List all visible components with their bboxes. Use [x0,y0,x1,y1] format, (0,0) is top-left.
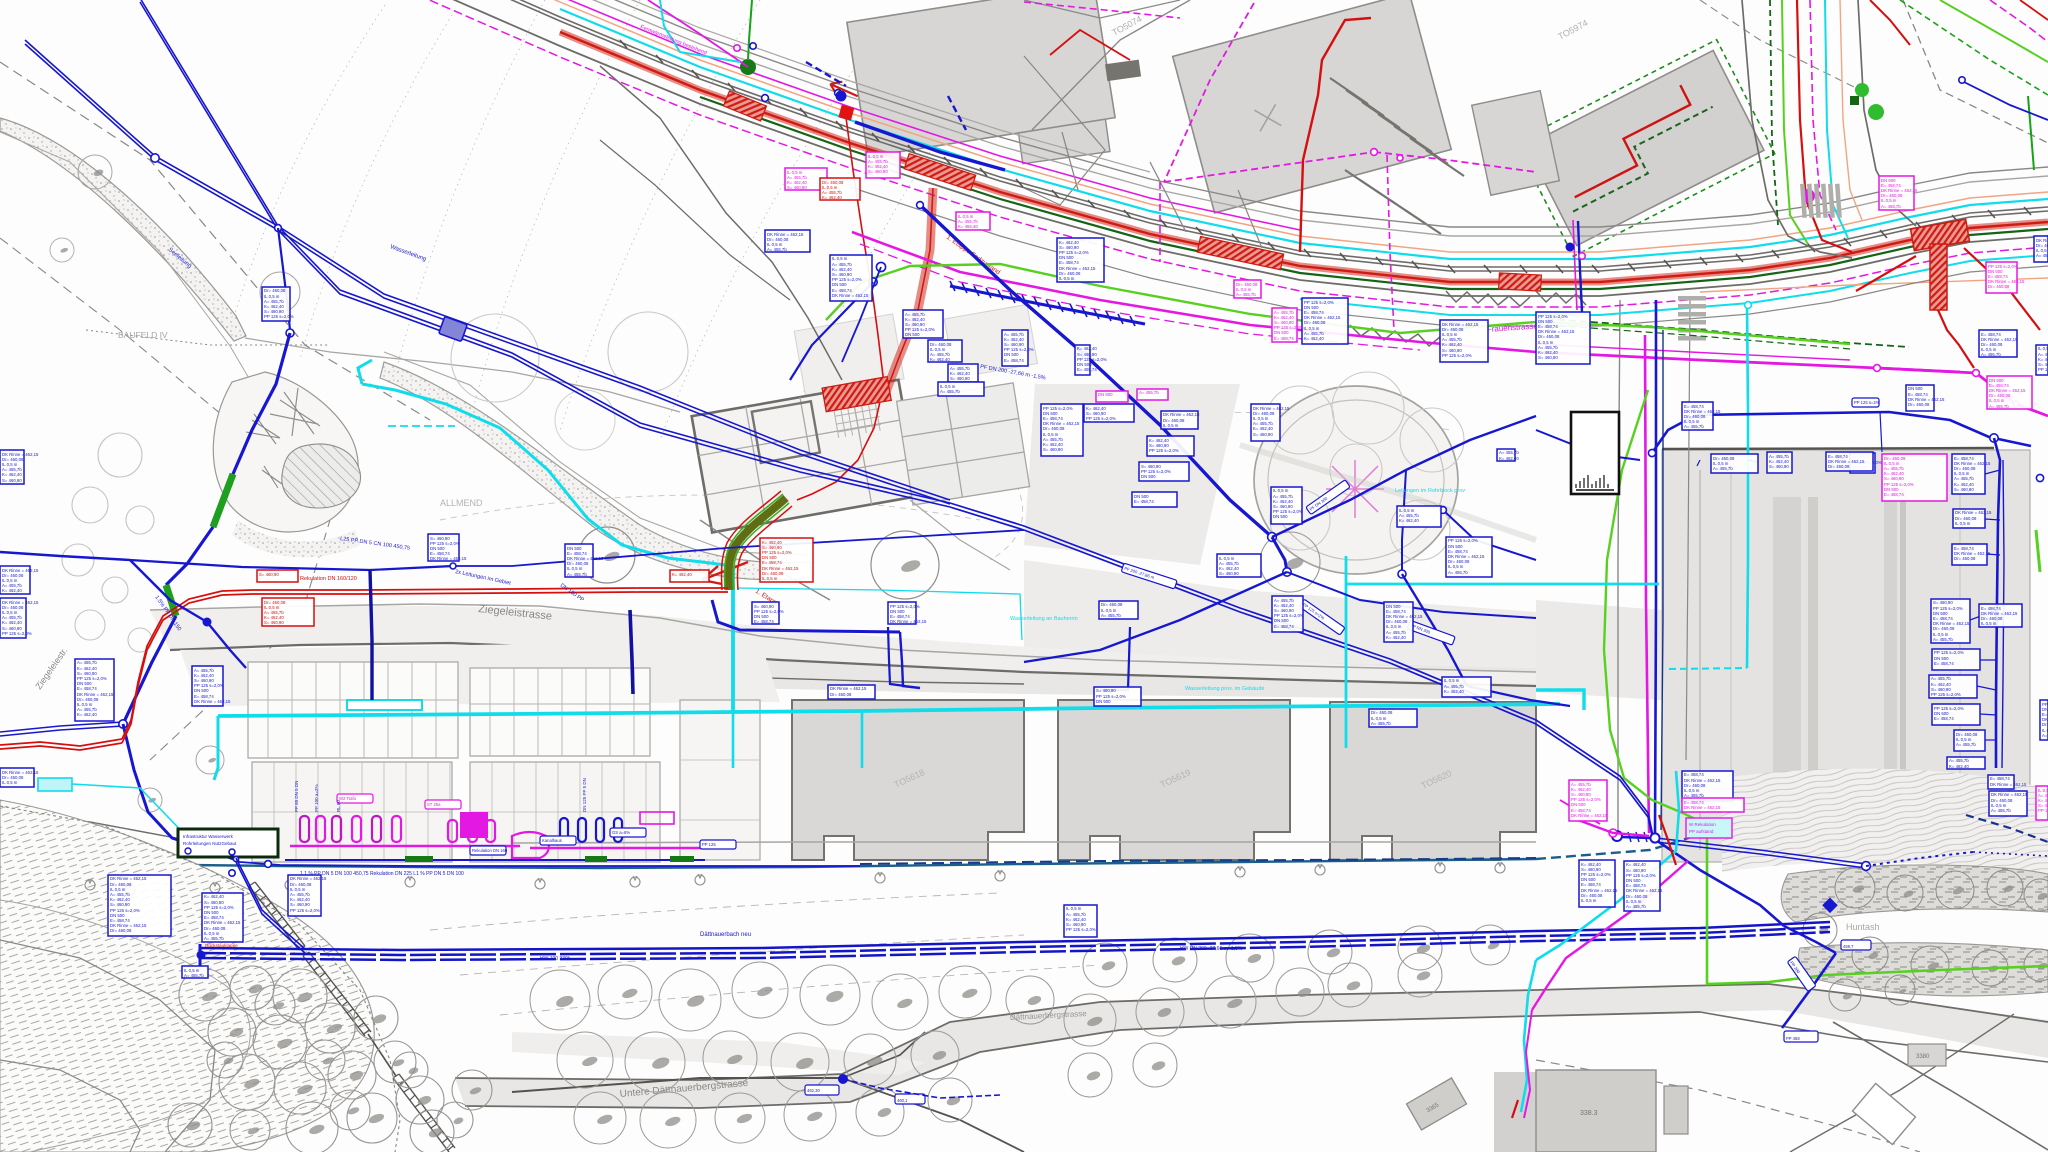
svg-text:E= 458,74: E= 458,74 [1990,776,2010,781]
svg-text:DN 500: DN 500 [1096,699,1111,704]
svg-text:A= 455,7b: A= 455,7b [940,389,960,394]
svg-text:E= 458,74: E= 458,74 [1274,336,1294,341]
svg-text:PP 125 s=2%: PP 125 s=2% [1854,400,1880,405]
svg-text:DK Rinne = 462,15: DK Rinne = 462,15 [890,619,927,624]
svg-text:IL 0,5 m: IL 0,5 m [1955,521,1971,526]
svg-text:PP 80 DN 5 DN: PP 80 DN 5 DN [294,781,299,812]
svg-text:Dr= 460,08: Dr= 460,08 [1908,402,1930,407]
svg-text:E= 458,74: E= 458,74 [1004,358,1024,363]
svg-text:S= 460,90: S= 460,90 [1219,571,1239,576]
svg-text:A= 455,7b: A= 455,7b [1954,476,1974,481]
svg-text:IL 0,5 m: IL 0,5 m [2,780,18,785]
svg-text:DN 500: DN 500 [1908,386,1923,391]
svg-text:E= 458,74: E= 458,74 [1684,772,1704,777]
svg-text:IL 0,5 m: IL 0,5 m [567,566,583,571]
svg-text:Huntash: Huntash [1846,922,1880,932]
svg-text:Dr= 460,08: Dr= 460,08 [830,692,852,697]
svg-text:PP 125 s=2,0%: PP 125 s=2,0% [1934,650,1964,655]
svg-text:K= 462,40: K= 462,40 [204,894,224,899]
svg-text:E= 458,74: E= 458,74 [1274,624,1294,629]
svg-text:K= 462,40: K= 462,40 [1077,346,1097,351]
svg-text:K= 462,40: K= 462,40 [958,224,978,229]
svg-text:PP 125 s=2,0%: PP 125 s=2,0% [1149,448,1179,453]
svg-text:K= 462,40: K= 462,40 [2,588,22,593]
svg-text:Dr= 460,08: Dr= 460,08 [2042,722,2048,727]
svg-text:A= 455,7b: A= 455,7b [77,660,97,665]
svg-text:Dr= 460,08: Dr= 460,08 [1371,710,1393,715]
svg-text:DK Rinne = 462,15: DK Rinne = 462,15 [1991,792,2028,797]
svg-text:A= 455,7b: A= 455,7b [1139,390,1159,395]
svg-text:PP aufstand: PP aufstand [1689,829,1714,834]
svg-text:E= 458,74: E= 458,74 [1934,661,1954,666]
svg-text:DK Rinne = 462,15: DK Rinne = 462,15 [1684,805,1721,810]
svg-text:K= 462,40: K= 462,40 [1442,342,1462,347]
svg-text:K= 462,40: K= 462,40 [1386,635,1406,640]
svg-text:462,30: 462,30 [807,1088,820,1093]
svg-text:459,7: 459,7 [1843,944,1854,949]
svg-text:DK Rinne = 462,15: DK Rinne = 462,15 [194,699,231,704]
svg-text:W Rekulation: W Rekulation [1689,822,1716,827]
svg-text:PP 125 s=2,0%: PP 125 s=2,0% [1066,927,1096,932]
svg-text:E= 458,74: E= 458,74 [1884,492,1904,497]
svg-text:A= 455,7b: A= 455,7b [2042,733,2048,738]
svg-text:RL 60: RL 60 [336,800,341,812]
svg-text:ALLMEND: ALLMEND [440,498,483,508]
svg-text:Dr= 460,08: Dr= 460,08 [1933,626,1955,631]
svg-text:IL 0,5 m: IL 0,5 m [1448,564,1464,569]
svg-text:Wasserleitung prov. im Gebäude: Wasserleitung prov. im Gebäude [1185,686,1264,692]
svg-text:K= 462,40: K= 462,40 [672,572,692,577]
svg-text:DK Rinne = 462,15: DK Rinne = 462,15 [1571,813,1608,818]
svg-text:A= 455,7b: A= 455,7b [1933,637,1953,642]
svg-text:A= 455,7b: A= 455,7b [184,973,204,978]
svg-text:PP 125 s=2,0%: PP 125 s=2,0% [290,908,320,913]
svg-text:K= 462,40: K= 462,40 [1399,518,1419,523]
svg-text:A= 455,7b: A= 455,7b [1626,904,1646,909]
svg-text:E= 458,74: E= 458,74 [754,619,774,624]
svg-text:Dr= 460,08: Dr= 460,08 [1043,426,1065,431]
svg-text:K= 462,40: K= 462,40 [822,195,842,200]
svg-text:PP 125 s=2,0%: PP 125 s=2,0% [1442,353,1472,358]
svg-text:Leitungen im Rohrblock prov: Leitungen im Rohrblock prov [1395,488,1465,494]
svg-text:A= 455,7b: A= 455,7b [1991,808,2011,813]
svg-text:Rückstauklappe: Rückstauklappe [205,943,238,948]
svg-text:IL 0,5 m: IL 0,5 m [1163,423,1179,428]
svg-text:S= 460,90: S= 460,90 [950,376,970,381]
svg-text:DK Rinne = 462,15: DK Rinne = 462,15 [1626,888,1663,893]
svg-text:PP 125 s=2,0%: PP 125 s=2,0% [1086,416,1116,421]
svg-text:A= 455,7b: A= 455,7b [1101,613,1121,618]
svg-text:K= 462,40: K= 462,40 [2,620,22,625]
svg-text:HW RN 300 -27,66 m -1,5%: HW RN 300 -27,66 m -1,5% [1180,946,1243,952]
svg-text:GS a=6%: GS a=6% [612,830,630,835]
svg-text:DN 500: DN 500 [1004,352,1019,357]
svg-text:DK Rinne = 462,15: DK Rinne = 462,15 [290,876,327,881]
svg-text:E= 458,74: E= 458,74 [762,560,782,565]
svg-text:A= 455,7b: A= 455,7b [1989,404,2009,409]
svg-text:PP 125: PP 125 [702,842,716,847]
svg-text:S= 460,90: S= 460,90 [1538,355,1558,360]
svg-text:DK Rinne = 462,15: DK Rinne = 462,15 [430,556,467,561]
svg-text:IL 0,5 m: IL 0,5 m [1059,276,1075,281]
svg-text:A= 455,7b: A= 455,7b [1236,292,1256,297]
svg-text:Infrastruktur Wasserwerk: Infrastruktur Wasserwerk [183,834,234,839]
svg-text:IL 0,5 m: IL 0,5 m [2038,346,2048,351]
svg-text:Dr= 460,08: Dr= 460,08 [1101,602,1123,607]
svg-text:PP 125 s=2,0%: PP 125 s=2,0% [1931,692,1961,697]
svg-text:S= 460,90: S= 460,90 [787,185,807,190]
svg-text:K= 462,40: K= 462,40 [1626,862,1646,867]
svg-text:S= 460,90: S= 460,90 [264,620,284,625]
svg-text:A= 455,7b: A= 455,7b [1881,204,1901,209]
svg-text:DN 125 PP 5 DN: DN 125 PP 5 DN [582,778,587,812]
svg-text:DN 500: DN 500 [1274,618,1289,623]
svg-text:IL 0,5 m: IL 0,5 m [1881,198,1897,203]
svg-text:S= 460,90: S= 460,90 [110,902,130,907]
svg-text:E= 458,74: E= 458,74 [1581,882,1601,887]
svg-text:DN 500: DN 500 [1141,474,1156,479]
svg-text:S= 460,90: S= 460,90 [1043,447,1063,452]
svg-text:BAUFELD IV: BAUFELD IV [118,330,168,340]
svg-text:S= 460,90: S= 460,90 [1884,476,1904,481]
svg-text:Dr= 460,08: Dr= 460,08 [1538,334,1560,339]
svg-text:Rekulation DN 160: Rekulation DN 160 [472,848,508,853]
svg-text:A= 455,7b: A= 455,7b [567,572,587,577]
svg-text:K= 462,40: K= 462,40 [77,712,97,717]
svg-text:Dr= 460,08: Dr= 460,08 [264,288,286,293]
svg-text:DN 500: DN 500 [194,688,209,693]
svg-text:Dr= 460,08: Dr= 460,08 [1304,320,1326,325]
svg-text:PP 125 s=2,0%: PP 125 s=2,0% [1448,538,1478,543]
svg-text:Dr= 460,08: Dr= 460,08 [1828,464,1850,469]
svg-text:A= 455,7b: A= 455,7b [1448,570,1468,575]
svg-text:HW 100 330k: HW 100 330k [540,956,571,962]
svg-text:DK Rinne = 462,15: DK Rinne = 462,15 [1990,782,2027,787]
svg-text:E= 458,74: E= 458,74 [1134,499,1154,504]
svg-text:Wasserleitung an Bauherrin: Wasserleitung an Bauherrin [1010,616,1078,622]
svg-text:PP 100 a=3%: PP 100 a=3% [314,784,319,812]
svg-text:A= 455,7b: A= 455,7b [1981,352,2001,357]
svg-text:Dr= 460,08: Dr= 460,08 [110,928,132,933]
svg-text:S= 460,90: S= 460,90 [1096,688,1116,693]
svg-text:DK Rinne = 462,15: DK Rinne = 462,15 [830,686,867,691]
svg-text:DN 500: DN 500 [1571,802,1586,807]
svg-text:S= 460,90: S= 460,90 [1933,600,1953,605]
svg-text:Dättnauerbach neu: Dättnauerbach neu [700,932,751,938]
svg-text:DN 500: DN 500 [832,282,847,287]
svg-text:Rohrleitungen NutzGebaut: Rohrleitungen NutzGebaut [183,841,237,846]
svg-text:DK Rinne = 462,15: DK Rinne = 462,15 [832,293,869,298]
svg-text:A= 455,7b: A= 455,7b [1713,466,1733,471]
svg-text:S= 460,90: S= 460,90 [290,902,310,907]
svg-text:E= 458,74: E= 458,74 [77,686,97,691]
svg-text:DN 500: DN 500 [1273,514,1288,519]
svg-text:IL 0,5 m: IL 0,5 m [1989,398,2005,403]
svg-text:E= 458,74: E= 458,74 [1059,260,1079,265]
svg-text:ST 25a: ST 25a [427,802,441,807]
svg-text:K= 462,40: K= 462,40 [1949,764,1969,769]
svg-text:Dr= 460,08: Dr= 460,08 [1988,284,2010,289]
svg-text:A= 455,7b: A= 455,7b [767,247,787,252]
svg-text:A= 455,7b: A= 455,7b [1371,721,1391,726]
svg-text:DK Rinne = 462,15: DK Rinne = 462,15 [204,920,241,925]
svg-text:K= 462,40: K= 462,40 [1304,336,1324,341]
svg-text:Dr= 460,08: Dr= 460,08 [1954,556,1976,561]
svg-text:A= 455,7b: A= 455,7b [1949,758,1969,763]
svg-text:IL 0,5 m: IL 0,5 m [1581,898,1597,903]
svg-text:DN 500: DN 500 [1098,392,1113,397]
svg-text:S= 460,90: S= 460,90 [2,478,22,483]
svg-text:E= 458,74: E= 458,74 [1077,367,1097,372]
svg-text:S= 460,90: S= 460,90 [1954,487,1974,492]
svg-text:IL 0,5 m: IL 0,5 m [1981,621,1997,626]
svg-text:A= 455,7b: A= 455,7b [1956,742,1976,747]
svg-text:K= 462,40: K= 462,40 [1253,426,1273,431]
svg-text:W2 Trafo: W2 Trafo [339,796,357,801]
svg-text:IL 0,5 m: IL 0,5 m [1273,488,1289,493]
svg-text:PP 125 s=2,0%: PP 125 s=2,0% [2038,808,2048,813]
svg-text:IL 0,5 m: IL 0,5 m [1386,624,1402,629]
svg-text:K= 462,40: K= 462,40 [1444,689,1464,694]
svg-text:S= 460,90: S= 460,90 [1769,464,1789,469]
svg-text:E= 458,74: E= 458,74 [1934,716,1954,721]
svg-text:A= 455,7b: A= 455,7b [1931,676,1951,681]
svg-text:IL 0,5 m: IL 0,5 m [1444,678,1460,683]
svg-text:PP 458: PP 458 [1786,1036,1800,1041]
svg-text:Rekulation DN 160/120: Rekulation DN 160/120 [300,576,357,582]
svg-text:DN 500: DN 500 [905,332,920,337]
svg-text:PP 125 s=2,0%: PP 125 s=2,0% [2,631,32,636]
svg-text:S= 460,90: S= 460,90 [259,572,279,577]
svg-text:338.3: 338.3 [1580,1110,1598,1117]
svg-text:DK Rinne = 462,15: DK Rinne = 462,15 [1955,510,1992,515]
svg-text:3380: 3380 [1916,1054,1930,1060]
svg-text:A= 455,7b: A= 455,7b [1684,424,1704,429]
svg-text:IL 0,5 m: IL 0,5 m [1066,906,1082,911]
svg-text:IL 0,5 m: IL 0,5 m [762,576,778,581]
svg-text:IL 0,5 m: IL 0,5 m [832,256,848,261]
svg-text:S= 460,90: S= 460,90 [1253,432,1273,437]
svg-text:Kanalhaus: Kanalhaus [542,838,562,843]
svg-text:K= 462,40: K= 462,40 [930,357,950,362]
svg-text:PP 125 s=2,0%: PP 125 s=2,0% [264,314,294,319]
svg-text:A= 455,7b: A= 455,7b [204,936,224,941]
svg-text:460,1: 460,1 [897,1098,908,1103]
svg-text:K= 462,40: K= 462,40 [2,472,22,477]
svg-text:S= 460,90: S= 460,90 [868,169,888,174]
svg-text:K= 462,40: K= 462,40 [1499,456,1519,461]
svg-text:DN 500: DN 500 [1274,330,1289,335]
svg-text:A= 455,7b: A= 455,7b [1499,450,1519,455]
svg-text:DK Rinne = 462,15: DK Rinne = 462,15 [110,876,147,881]
svg-text:A= 455,7b: A= 455,7b [2036,253,2048,258]
svg-text:PP 125 s=2,0%: PP 125 s=2,0% [2038,367,2048,372]
svg-text:DK Rinne = 462,15: DK Rinne = 462,15 [1163,412,1200,417]
